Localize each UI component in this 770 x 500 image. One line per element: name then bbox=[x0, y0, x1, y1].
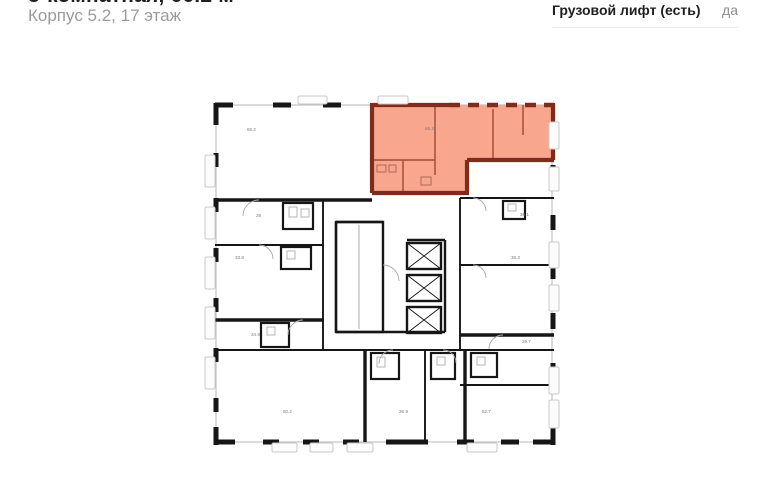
room-area-label: 33.8 bbox=[235, 255, 244, 260]
balcony bbox=[549, 285, 559, 311]
freight-elevator-value: да bbox=[722, 2, 738, 18]
balcony bbox=[205, 207, 215, 239]
balcony bbox=[549, 367, 559, 394]
internal-walls-thick bbox=[215, 200, 554, 442]
balcony bbox=[549, 242, 559, 268]
balcony bbox=[298, 96, 327, 104]
spec-divider bbox=[552, 27, 738, 28]
balcony bbox=[549, 400, 559, 428]
balcony bbox=[467, 443, 497, 452]
balcony bbox=[205, 357, 215, 389]
balcony bbox=[205, 155, 215, 187]
elevator-x-icon bbox=[407, 307, 441, 333]
balcony bbox=[378, 96, 408, 104]
balcony bbox=[205, 257, 215, 289]
balcony bbox=[549, 122, 559, 149]
room-area-label: 34.9 bbox=[251, 332, 260, 337]
room-area-label: 66.2 bbox=[425, 126, 434, 131]
page-subtitle: Корпус 5.2, 17 этаж bbox=[28, 6, 181, 26]
room-area-label: 36.3 bbox=[511, 255, 520, 260]
core-walls bbox=[336, 222, 445, 332]
elevator-x-icon bbox=[407, 275, 441, 301]
freight-elevator-label: Грузовой лифт (есть) bbox=[552, 2, 701, 18]
room-area-label: 52.7 bbox=[482, 409, 491, 414]
stairwell bbox=[336, 222, 383, 332]
room-area-label: 50.2 bbox=[283, 409, 292, 414]
balcony bbox=[549, 167, 559, 191]
room-area-label: 28 bbox=[256, 213, 262, 218]
bathrooms bbox=[261, 201, 525, 379]
room-area-label: 36.9 bbox=[399, 409, 408, 414]
room-area-label: 36.1 bbox=[520, 212, 529, 217]
elevator-x-icon bbox=[407, 243, 441, 269]
highlighted-apartment[interactable] bbox=[372, 105, 554, 193]
balcony bbox=[347, 443, 373, 452]
floor-plan-svg: 65.266.22833.834.950.236.952.729.736.136… bbox=[203, 95, 560, 455]
balcony bbox=[310, 443, 333, 452]
floor-plan: 65.266.22833.834.950.236.952.729.736.136… bbox=[203, 95, 560, 455]
room-area-label: 65.2 bbox=[247, 127, 256, 132]
room-area-label: 29.7 bbox=[522, 339, 531, 344]
balcony bbox=[272, 443, 297, 452]
spec-row-freight-elevator: Грузовой лифт (есть) да bbox=[552, 2, 738, 26]
elevator-shafts bbox=[407, 243, 441, 333]
balcony bbox=[205, 307, 215, 339]
